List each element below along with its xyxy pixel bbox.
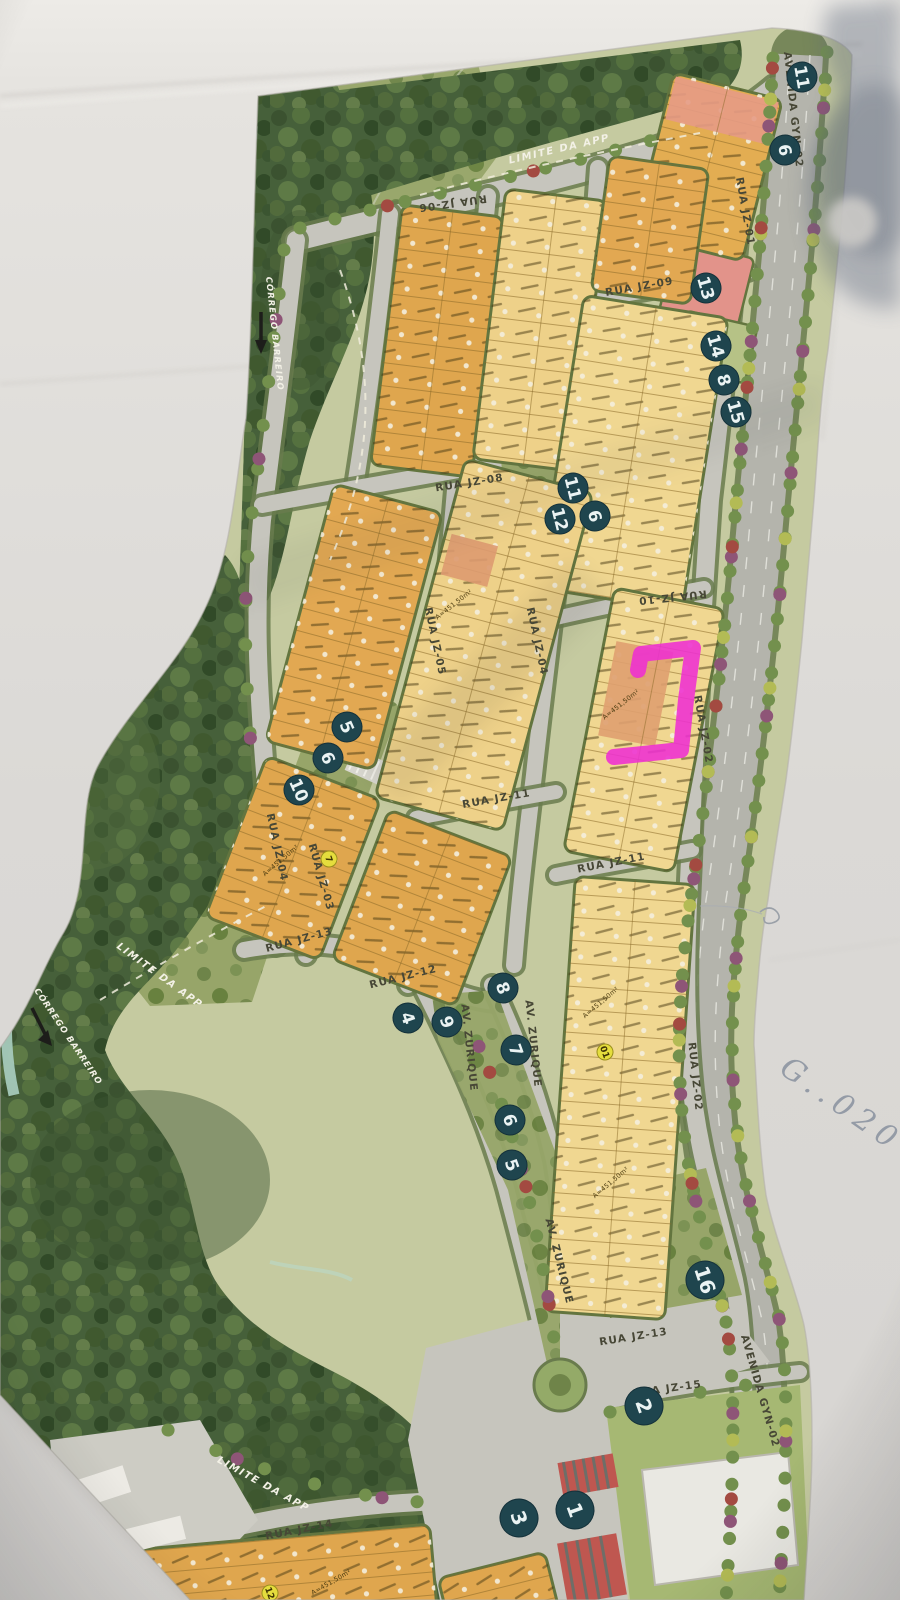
photo-of-site-plan: RUA JZ-06 RUA JZ-09 RUA JZ-01 RUA JZ-08 … [0,0,900,1600]
photo-vignette [0,0,900,1600]
site-plan-svg: RUA JZ-06 RUA JZ-09 RUA JZ-01 RUA JZ-08 … [0,0,900,1600]
